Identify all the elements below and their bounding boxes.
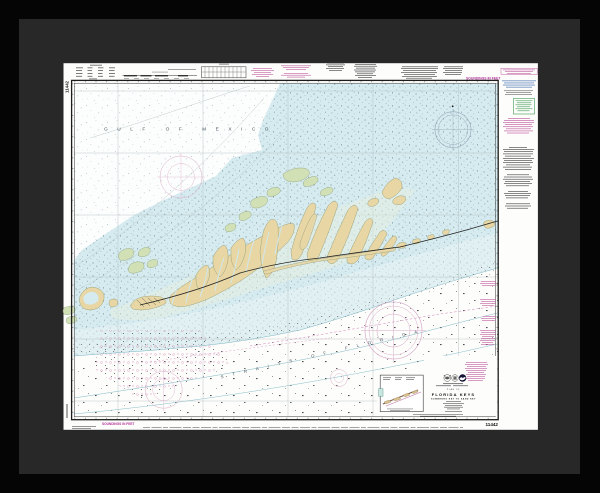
svg-text:SOUNDINGS IN FEET: SOUNDINGS IN FEET xyxy=(102,422,134,426)
svg-text:11442: 11442 xyxy=(485,422,498,427)
svg-text:SOUNDINGS IN FEET: SOUNDINGS IN FEET xyxy=(466,76,501,80)
svg-text:SOMBRERO KEY TO SAND KEY: SOMBRERO KEY TO SAND KEY xyxy=(431,397,476,400)
svg-text:GULF OF MEXICO: GULF OF MEXICO xyxy=(104,127,278,133)
svg-text:11442: 11442 xyxy=(65,80,70,93)
svg-text:FLORIDA KEYS: FLORIDA KEYS xyxy=(432,392,475,397)
svg-text:PLAN OF: PLAN OF xyxy=(447,388,460,391)
